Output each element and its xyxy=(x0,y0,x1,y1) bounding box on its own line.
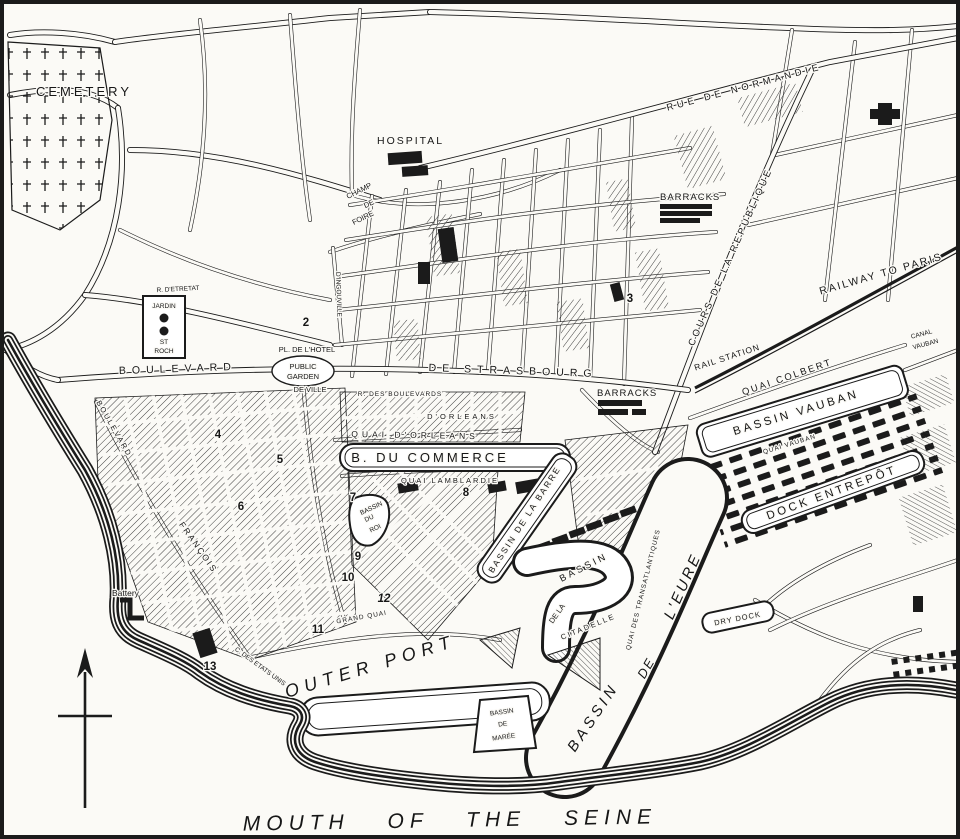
label-des-boulevards: R. DES BOULEVARDS xyxy=(358,391,442,398)
label-bassin-de-maree: DE xyxy=(498,720,509,728)
label-jardin-st-roch: JARDIN xyxy=(152,303,176,310)
label-pl-hotel-de-ville: DE VILLE xyxy=(294,385,327,394)
label-public-garden: PUBLIC xyxy=(289,362,317,371)
marker-5: 5 xyxy=(277,454,284,466)
tree-circles-icon xyxy=(160,314,169,323)
label-jardin-st-roch: ROCH xyxy=(154,348,173,355)
marker-13: 13 xyxy=(204,661,217,673)
marker-4: 4 xyxy=(215,429,222,441)
tree-circles-icon xyxy=(160,327,169,336)
map-page: CEMETERY HOSPITAL CHAMP DE FOIRE BARRACK… xyxy=(0,0,960,839)
city-map-engraving: CEMETERY HOSPITAL CHAMP DE FOIRE BARRACK… xyxy=(0,0,960,839)
label-pl-hotel-de-ville: PL. DE L'HOTEL xyxy=(279,345,335,354)
label-hospital: HOSPITAL xyxy=(377,135,444,147)
cemetery-area xyxy=(8,42,112,230)
marker-9: 9 xyxy=(355,551,361,563)
label-rue-dorleans: D'ORLEANS xyxy=(427,412,497,421)
marker-12: 12 xyxy=(378,593,391,605)
marker-10: 10 xyxy=(342,572,355,584)
marker-11: 11 xyxy=(312,624,325,636)
label-cemetery: CEMETERY xyxy=(36,84,132,99)
label-jardin-st-roch: ST xyxy=(160,339,168,346)
marker-6: 6 xyxy=(238,501,244,513)
public-garden-oval xyxy=(272,356,334,386)
label-barracks-station: BARRACKS xyxy=(597,388,657,399)
marker-7: 7 xyxy=(350,492,356,504)
label-quai-lamblardie: QUAI LAMBLARDIE xyxy=(401,476,499,485)
label-bassin-du-commerce: B. DU COMMERCE xyxy=(351,450,509,465)
label-battery: Battery xyxy=(112,588,140,598)
marker-2: 2 xyxy=(303,317,309,329)
label-public-garden: GARDEN xyxy=(287,372,319,381)
marker-3: 3 xyxy=(627,293,633,305)
marker-8: 8 xyxy=(463,487,470,499)
label-barracks-north: BARRACKS xyxy=(660,192,720,203)
